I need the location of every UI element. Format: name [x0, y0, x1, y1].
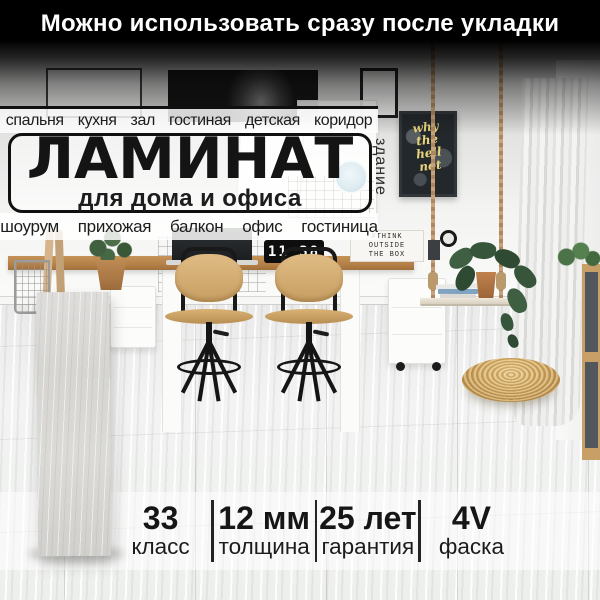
wicker-pouf — [462, 358, 560, 402]
chair-lever — [313, 329, 329, 336]
shelf-plant — [552, 242, 600, 272]
spec-item-bevel: 4V фаска — [421, 502, 522, 560]
drawer-wheel — [396, 362, 405, 371]
pen-cup — [428, 240, 440, 260]
office-chair — [155, 247, 265, 377]
chair-foot-ring — [277, 359, 341, 375]
spec-value: 12 мм — [218, 502, 310, 536]
drawer-wheel — [432, 362, 441, 371]
spec-label: класс — [131, 535, 189, 560]
swing-seat-board — [420, 298, 515, 306]
drawer-unit-left — [110, 286, 156, 348]
spec-value: 25 лет — [319, 502, 416, 536]
office-chair — [255, 247, 365, 377]
top-banner: Можно использовать сразу после укладки — [0, 9, 600, 39]
product-title: ЛАМИНАТ — [27, 133, 354, 185]
side-shelf — [582, 264, 600, 460]
chair-lever — [213, 329, 229, 336]
headphones-icon — [440, 230, 457, 247]
lightbox-line: OUTSIDE — [369, 242, 405, 250]
chair-backrest — [275, 254, 343, 302]
spec-item-warranty: 25 лет гарантия — [317, 502, 418, 560]
spec-value: 4V — [452, 502, 491, 536]
product-infographic: why the hell not 11 38 #THINK OUTSIDE TH… — [0, 0, 600, 600]
laminate-plank-sample — [36, 292, 111, 557]
floor-plant-pot — [96, 260, 126, 290]
laminate-title-box: ЛАМИНАТ для дома и офиса — [8, 133, 372, 213]
lightbox-line: THE BOX — [369, 251, 405, 259]
spec-label: фаска — [439, 535, 504, 560]
swing-knot — [496, 272, 506, 290]
spec-item-thickness: 12 мм толщина — [214, 502, 315, 560]
specs-row: 33 класс 12 мм толщина 25 лет гарантия 4… — [110, 492, 522, 570]
spec-item-class: 33 класс — [110, 502, 211, 560]
product-subtitle: для дома и офиса — [78, 185, 301, 213]
chair-foot-ring — [177, 359, 241, 375]
spec-label: толщина — [219, 535, 310, 560]
spec-value: 33 — [143, 502, 179, 536]
chair-backrest — [175, 254, 243, 302]
rooms-band-bottom: шоурум прихожая балкон офис гостиница — [0, 213, 378, 240]
spec-label: гарантия — [321, 535, 414, 560]
